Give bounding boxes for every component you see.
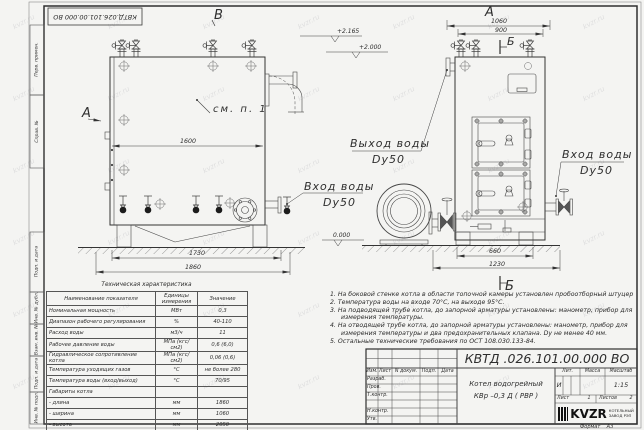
elevation-zero: 0.000	[333, 232, 350, 239]
note-item: 5. Остальные технические требования по О…	[330, 338, 638, 346]
company-logo-text: KVZR	[570, 407, 607, 421]
col-izm: Изм.	[366, 369, 378, 374]
cell-units: м3/ч	[156, 328, 198, 339]
sheets-value: 2	[626, 396, 636, 401]
cell-name: Температура уходящих газов	[47, 365, 156, 376]
lit-label: Лит.	[555, 369, 580, 374]
tech-header-units: Единицы измерения	[156, 292, 198, 306]
tech-table: Наименование показателя Единицы измерени…	[46, 291, 248, 430]
tech-header-value: Значение	[198, 292, 248, 306]
inlet-right-label-line1: Вход воды	[562, 148, 632, 161]
cell-name: Рабочее давление воды	[47, 339, 156, 352]
format-value: А3	[607, 424, 614, 430]
company-logo: KVZR КОТЕЛЬНЫЙ ЗАВОД РЭП	[556, 404, 636, 423]
lower-ash-door	[472, 170, 531, 216]
cell-units: МПа (кгс/см2)	[156, 339, 198, 352]
table-row: Температура уходящих газов°Сне более 280	[47, 365, 248, 376]
sig-razrab: Разраб.	[367, 377, 393, 382]
sig-utv: Утв.	[367, 417, 393, 422]
table-row: Габариты котла	[47, 387, 248, 398]
sig-tkontr: Т.контр.	[367, 393, 393, 398]
table-row: Диапазон рабочего регулирования%40-110	[47, 317, 248, 328]
cell-name: Габариты котла	[47, 387, 156, 398]
view-a-arrow-label: А	[82, 106, 91, 121]
note-item: 4. На отводящей трубе котла, до запорной…	[330, 322, 638, 338]
upper-furnace-door	[472, 117, 531, 168]
cell-value	[198, 387, 248, 398]
inlet-right-label-line2: Dy50	[580, 164, 613, 177]
frame-col-vzam-inv: Взам. инв. №	[35, 324, 40, 356]
table-row: - ширинамм1060	[47, 409, 248, 420]
sheet-value: 1	[584, 396, 594, 401]
cell-name: - ширина	[47, 409, 156, 420]
scale-label: Масштаб	[605, 369, 637, 374]
outlet-label-line1: Выход воды	[350, 137, 430, 150]
cell-units: МПа (кгс/см2)	[156, 352, 198, 365]
doc-number-top: КВТД.026.101.00.000 ВО	[48, 8, 142, 25]
frame-col-podp-data-1: Подп. и дата	[35, 232, 40, 292]
frame-col-podp-data-2: Подп. и дата	[35, 356, 40, 392]
product-name-line2: КВр –0,3 Д ( РВР )	[459, 392, 553, 400]
frame-col-sprav-no: Справ. №	[35, 95, 40, 168]
table-row: Расход водым3/ч11	[47, 328, 248, 339]
cell-units: мм	[156, 398, 198, 409]
dim-front-total: 1060	[479, 18, 519, 25]
blower-fan	[377, 184, 456, 246]
note-item: 2. Температура воды на входе 70°С, на вы…	[330, 299, 638, 307]
col-podp: Подп.	[420, 369, 438, 374]
engineering-drawing-sheet: kvzr.rukvzr.rukvzr.rukvzr.rukvzr.rukvzr.…	[0, 0, 644, 430]
cell-name: Гидравлическое сопротивление котла	[47, 352, 156, 365]
col-ndoc: N докум.	[392, 369, 420, 374]
dimension-lines	[96, 20, 560, 275]
product-name-line1: Котел водогрейный	[459, 380, 553, 388]
cell-name: - высота	[47, 420, 156, 430]
cell-units: мм	[156, 409, 198, 420]
cell-value: 0,06 (0,6)	[198, 352, 248, 365]
col-list: Лист	[378, 369, 392, 374]
see-item-callout: см. п. 1	[213, 104, 268, 115]
cell-value: не более 280	[198, 365, 248, 376]
mass-label: Масса	[580, 369, 605, 374]
section-b-top-label: Б	[507, 35, 515, 48]
sig-prov: Пров.	[367, 385, 393, 390]
technical-notes: 1. На боковой стенке котла в области топ…	[330, 291, 638, 346]
format-word: Формат	[580, 424, 600, 430]
outlet-flange-stub	[446, 58, 455, 76]
scale-value: 1:15	[605, 381, 637, 389]
elevation-mid: +2.000	[359, 44, 381, 51]
dim-front-full: 1230	[477, 261, 517, 268]
dim-side-width: 1600	[168, 138, 208, 145]
cell-units: °С	[156, 376, 198, 387]
cell-units: МВт	[156, 306, 198, 317]
table-row: - высотамм2050	[47, 420, 248, 430]
col-data: Дата	[438, 369, 457, 374]
company-sub-line2: ЗАВОД РЭП	[609, 414, 634, 418]
tech-header-name: Наименование показателя	[47, 292, 156, 306]
tech-table-title: Техническая характеристика	[46, 282, 247, 288]
cell-name: Температура воды (вход/выход)	[47, 376, 156, 387]
cell-value: 70/95	[198, 376, 248, 387]
note-item: 3. На подводящей трубе котла, до запорно…	[330, 307, 638, 323]
cell-name: Диапазон рабочего регулирования	[47, 317, 156, 328]
frame-col-inv-dubl: Инв. № дубл.	[35, 292, 40, 324]
outlet-elbow-pipe	[265, 72, 304, 114]
blower-inlet-valve	[429, 198, 456, 234]
dim-side-base: 1730	[177, 250, 217, 257]
cell-units	[156, 387, 198, 398]
cell-units: мм	[156, 420, 198, 430]
inlet-left-label-line2: Dy50	[323, 196, 356, 209]
title-block-doc-number: КВТД .026.101.00.000 ВО	[457, 350, 637, 368]
view-b-label: В	[214, 8, 223, 23]
cell-value: 0,3	[198, 306, 248, 317]
table-row: Рабочее давление водыМПа (кгс/см2)0,6 (6…	[47, 339, 248, 352]
cell-value: 1860	[198, 398, 248, 409]
table-row: Номинальная мощностьМВт0,3	[47, 306, 248, 317]
sheet-label: Лист	[557, 396, 577, 401]
tech-table-header-row: Наименование показателя Единицы измерени…	[47, 292, 248, 306]
cell-value: 1060	[198, 409, 248, 420]
cell-value: 11	[198, 328, 248, 339]
dim-front-base: 660	[475, 248, 515, 255]
table-row: Гидравлическое сопротивление котлаМПа (к…	[47, 352, 248, 365]
cell-units: °С	[156, 365, 198, 376]
front-inlet-valve	[545, 189, 573, 215]
side-inlet-valve	[265, 197, 291, 214]
elevation-top: +2.165	[337, 28, 359, 35]
format-label: Формат А3	[580, 424, 613, 430]
outlet-label-line2: Dy50	[372, 153, 405, 166]
cell-value: 2050	[198, 420, 248, 430]
cell-value: 40-110	[198, 317, 248, 328]
sig-nkontr: Н.контр.	[367, 409, 393, 414]
boiler-front-view	[446, 40, 573, 245]
cell-name: Номинальная мощность	[47, 306, 156, 317]
round-port-flange	[233, 198, 257, 222]
lit-value: И	[555, 381, 563, 389]
cell-name: - длина	[47, 398, 156, 409]
cell-value: 0,6 (6,0)	[198, 339, 248, 352]
frame-col-perv-primen: Перв. примен.	[35, 25, 40, 95]
dim-side-total: 1860	[173, 264, 213, 271]
cell-units: %	[156, 317, 198, 328]
frame-col-inv-podl: Инв. № подл.	[35, 392, 40, 424]
table-row: Температура воды (вход/выход)°С70/95	[47, 376, 248, 387]
sheets-label: Листов	[599, 396, 623, 401]
company-logo-mark	[558, 407, 568, 421]
dim-front-inner: 900	[481, 27, 521, 34]
cell-name: Расход воды	[47, 328, 156, 339]
inlet-left-label-line1: Вход воды	[304, 180, 374, 193]
note-item: 1. На боковой стенке котла в области топ…	[330, 291, 638, 299]
table-row: - длинамм1860	[47, 398, 248, 409]
company-logo-subtext: КОТЕЛЬНЫЙ ЗАВОД РЭП	[609, 409, 634, 418]
